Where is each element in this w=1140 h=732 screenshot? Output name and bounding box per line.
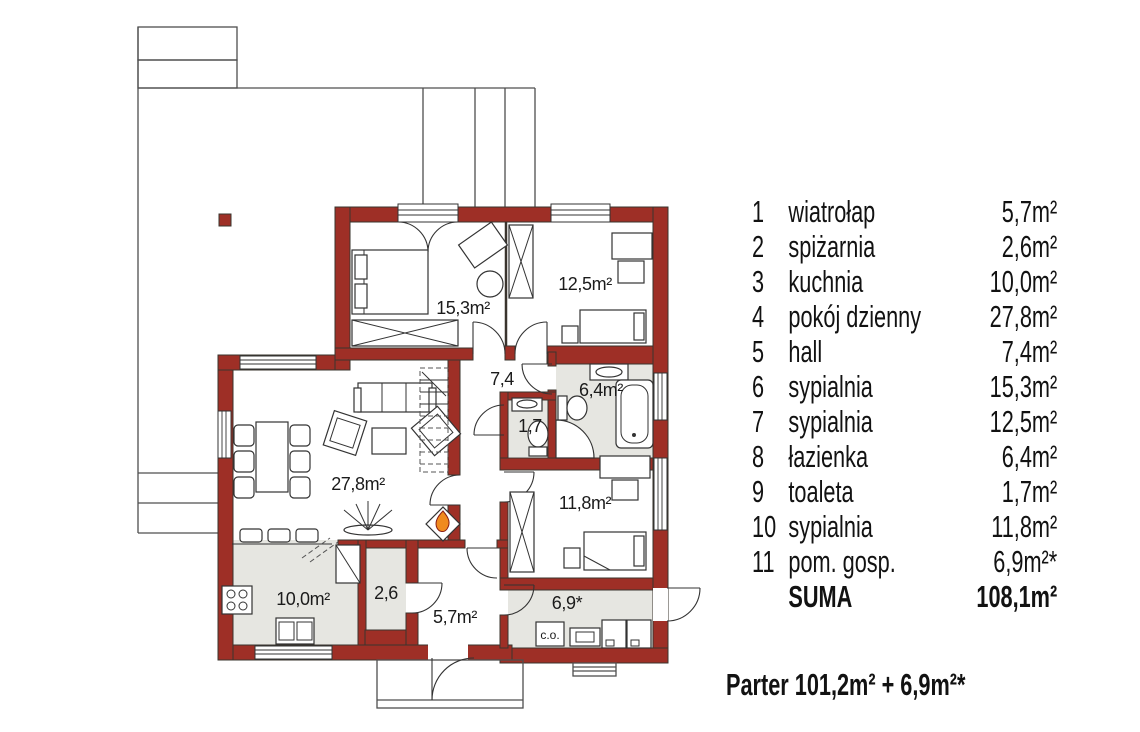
nightstand [564, 548, 580, 568]
room-number: 10 [752, 509, 788, 544]
room-number: 11 [752, 544, 788, 579]
window-salon-top [240, 356, 316, 369]
sofa [358, 383, 432, 412]
room-name: toaleta [788, 474, 1001, 509]
room-number: 7 [752, 404, 788, 439]
room-name: pom. gosp. [788, 544, 993, 579]
legend-row: 9toaleta1,7m² [752, 474, 1057, 509]
legend-row: 4pokój dzienny27,8m² [752, 299, 1057, 334]
room-label-toaleta: 1,7 [518, 416, 542, 436]
french-door-sypialnia-6 [398, 204, 458, 222]
furniture-sypialnia-10 [510, 456, 650, 572]
chair [618, 261, 644, 283]
door-wiatrolap-hall [467, 548, 497, 578]
desk [600, 456, 650, 478]
coffee-table [372, 428, 406, 454]
room-area: 7,4m² [1002, 334, 1057, 369]
boiler-co-label: c.o. [540, 628, 559, 642]
bar-stool [268, 529, 290, 542]
plant [344, 501, 392, 535]
room-area: 11,8m² [991, 509, 1057, 544]
room-label-pom-gosp: 6,9* [552, 593, 583, 613]
room-name: hall [788, 334, 1001, 369]
chair [234, 425, 254, 446]
room-name: sypialnia [788, 509, 991, 544]
room-area: 27,8m² [990, 299, 1058, 334]
porch [377, 660, 616, 708]
room-area: 1,7m² [1002, 474, 1057, 509]
sofa-arm [354, 388, 361, 412]
room-number: 2 [752, 229, 788, 264]
pillow [634, 313, 644, 340]
room-label-kuchnia: 10,0m² [276, 589, 330, 609]
door-sypialnia-6 [473, 322, 505, 354]
room-area: 15,3m² [990, 369, 1058, 404]
legend-row: 2spiżarnia2,6m² [752, 229, 1057, 264]
bar-stool [296, 529, 318, 542]
garage-pillar [219, 214, 231, 226]
room-label-spizarnia: 2,6 [374, 583, 398, 603]
room-label-pokoj-dzienny: 27,8m² [331, 474, 385, 494]
room-number: 3 [752, 264, 788, 299]
chair [290, 477, 310, 498]
door-salon [430, 475, 460, 505]
room-name: kuchnia [788, 264, 989, 299]
room-area: 6,4m² [1002, 439, 1057, 474]
desk [612, 233, 652, 259]
french-door-leaf-right [428, 222, 458, 252]
chair [234, 451, 254, 472]
nightstand [562, 326, 578, 343]
room-name: pokój dzienny [788, 299, 989, 334]
room-name: sypialnia [788, 369, 989, 404]
room-label-sypialnia-6: 15,3m² [436, 298, 490, 318]
room-number: 6 [752, 369, 788, 404]
room-label-wiatrolap: 5,7m² [433, 607, 477, 627]
chair [290, 425, 310, 446]
utility-sink [570, 628, 600, 646]
room-name: sypialnia [788, 404, 989, 439]
pillow [634, 536, 644, 566]
french-door-leaf-left [398, 222, 428, 252]
room-number: 9 [752, 474, 788, 509]
window-sypialnia-7 [551, 204, 610, 222]
pillow [355, 284, 367, 308]
room-label-hall: 7,4 [490, 369, 514, 389]
room-number: 4 [752, 299, 788, 334]
room-name: łazienka [788, 439, 1001, 474]
pillow [355, 255, 367, 279]
door-sypialnia-7 [515, 322, 547, 354]
legend-row: 10sypialnia11,8m² [752, 509, 1057, 544]
parter-total-text: Parter 101,2m² + 6,9m²* [726, 667, 965, 702]
legend-row: 1wiatrołap5,7m² [752, 194, 1057, 229]
room-name: spiżarnia [788, 229, 1001, 264]
furniture-salon [234, 368, 461, 541]
room-area: 2,6m² [1002, 229, 1057, 264]
window-sypialnia-10 [654, 458, 667, 530]
room-area: 6,9m²* [993, 544, 1057, 579]
room-area: 10,0m² [990, 264, 1058, 299]
room-label-sypialnia-10: 11,8m² [559, 493, 612, 513]
bar-stool [240, 529, 262, 542]
dining-table [256, 422, 288, 492]
wc-tank [558, 396, 567, 420]
legend-row: 11pom. gosp.6,9m²* [752, 544, 1057, 579]
room-number: 5 [752, 334, 788, 369]
chair [612, 480, 638, 500]
floor-plan-page: 15,3m² 12,5m² 7,4 6,4m² 1,7 27,8m² 11,8m… [0, 0, 1140, 732]
chair [477, 271, 503, 297]
room-area: 5,7m² [1002, 194, 1057, 229]
entrance-opening [428, 644, 468, 661]
room-legend: 1wiatrołap5,7m² 2spiżarnia2,6m² 3kuchnia… [752, 194, 1057, 614]
stove [222, 586, 252, 614]
wc-tank [529, 447, 547, 456]
room-label-sypialnia-7: 12,5m² [558, 274, 612, 294]
legend-row: 6sypialnia15,3m² [752, 369, 1057, 404]
room-name: wiatrołap [788, 194, 1001, 229]
entrance-door [432, 658, 474, 700]
room-area: 12,5m² [990, 404, 1058, 439]
parter-total: Parter 101,2m² + 6,9m²* [726, 667, 965, 703]
room-number: 1 [752, 194, 788, 229]
armchair [323, 411, 366, 456]
pom-gosp-door-opening [653, 588, 668, 621]
legend-row: 8łazienka6,4m² [752, 439, 1057, 474]
legend-row: 7sypialnia12,5m² [752, 404, 1057, 439]
chair [290, 451, 310, 472]
suma-value: 108,1m² [976, 579, 1057, 614]
pom-gosp-ext-door [667, 588, 700, 621]
window-lazienka [654, 373, 667, 420]
room-label-lazienka: 6,4m² [579, 380, 623, 400]
chair [234, 477, 254, 498]
legend-row: 5hall7,4m² [752, 334, 1057, 369]
back-steps [573, 663, 616, 676]
window-salon-left [218, 411, 231, 458]
room-number: 8 [752, 439, 788, 474]
legend-row: 3kuchnia10,0m² [752, 264, 1057, 299]
window-kuchnia [255, 646, 332, 659]
desk [459, 222, 508, 268]
legend-suma-row: SUMA108,1m² [752, 579, 1057, 614]
suma-label: SUMA [788, 579, 976, 614]
